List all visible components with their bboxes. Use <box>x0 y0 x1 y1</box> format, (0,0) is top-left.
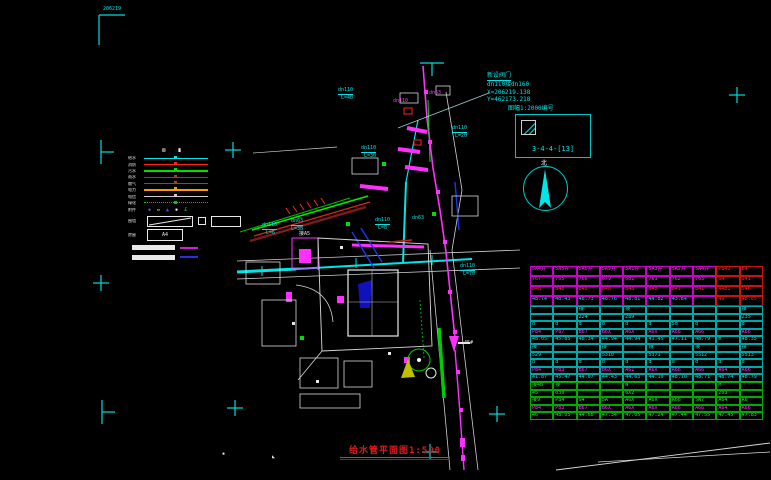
table-cell <box>577 352 600 360</box>
table-cell <box>600 314 623 322</box>
table-cell: 679 <box>600 276 623 286</box>
table-cell: P84 <box>553 397 576 405</box>
table-cell: 546 <box>740 286 763 296</box>
table-cell: d <box>623 321 646 329</box>
table-cell: 529 <box>530 352 553 360</box>
map-label: 45# <box>464 341 473 346</box>
valve-annotation-title: 新设阀门 <box>487 72 511 81</box>
table-cell: 43.84 <box>670 296 693 306</box>
table-cell: 接 <box>623 306 646 314</box>
table-cell: P84 <box>530 329 553 337</box>
table-cell: 49 <box>716 296 739 306</box>
table-cell <box>740 390 763 398</box>
table-row: dddddd5ddd <box>530 321 763 329</box>
table-cell: A6X <box>623 405 646 413</box>
table-cell: d <box>693 359 716 367</box>
table-cell: 47.44 <box>670 412 693 420</box>
legend-header: ⊠∎ <box>128 146 246 155</box>
table-cell <box>646 382 669 390</box>
table-cell: 接4B <box>530 382 553 390</box>
table-cell: P83 <box>553 367 576 375</box>
table-cell: B4 <box>740 266 763 276</box>
legend-line-tick-icon <box>174 168 177 171</box>
table-cell: 41.45 <box>646 336 669 344</box>
table-cell: 47.34 <box>600 412 623 420</box>
valve-annotation: 新设阀门 dn110接dn160 X=206219.138 Y=462173.2… <box>487 72 530 104</box>
table-cell: 44.82 <box>646 296 669 306</box>
table-cell: d <box>577 321 600 329</box>
legend-symbols-label: 附件 <box>128 208 142 212</box>
table-cell: d <box>623 359 646 367</box>
map-label: ▪ <box>222 452 225 457</box>
table-row: 41.8745.4744.0744.4344.6344.1048.1048.71… <box>530 374 763 382</box>
table-cell: 48.34 <box>577 336 600 344</box>
map-label: 接A5 <box>299 232 310 237</box>
legend-row-label: 给水 <box>128 156 142 160</box>
legend: ⊠∎ 给水消防污水雨水燃气电力电信绿化 附件◆▭▲▪£ 围墙 房屋 A4 <box>128 146 246 260</box>
legend-row-label: 电信 <box>128 195 142 199</box>
table-cell: M <box>716 382 739 390</box>
table-row: 48.7448.4348.7348.7648.8144.8243.844948.… <box>530 296 763 306</box>
scale-bar-icon <box>132 245 175 250</box>
table-cell: 5A4井 <box>693 266 716 276</box>
table-row: 76776576667968176176276364241 <box>530 276 763 286</box>
table-cell <box>693 306 716 314</box>
table-cell <box>623 344 646 352</box>
table-cell: P87 <box>553 329 576 337</box>
wall-symbol-icon <box>147 216 193 227</box>
legend-line-tick-icon <box>174 187 177 190</box>
table-cell: 6X2 <box>623 390 646 398</box>
legend-row: 绿化 <box>128 200 246 206</box>
table-cell: B67 <box>577 405 600 413</box>
table-cell: 030 <box>553 390 576 398</box>
table-row: 450306X2203 <box>530 390 763 398</box>
table-cell: B6X <box>600 367 623 375</box>
table-cell: 5371 <box>646 352 669 360</box>
sheet-title: 给水管平面图1:500 <box>340 443 450 460</box>
table-cell: 763 <box>693 276 716 286</box>
map-label: dn110 <box>262 223 277 230</box>
map-label: dn110 <box>452 126 467 133</box>
table-cell: 48.74 <box>530 296 553 306</box>
table-cell: 224 <box>577 314 600 322</box>
table-cell: 48.05 <box>740 296 763 306</box>
legend-line-sample-icon <box>144 164 208 165</box>
table-cell: 47.55 <box>693 412 716 420</box>
table-cell: 44.94 <box>600 336 623 344</box>
table-cell: 45.85 <box>553 336 576 344</box>
legend-row-label: 燃气 <box>128 182 142 186</box>
table-cell <box>553 352 576 360</box>
table-cell: 48.35 <box>740 336 763 344</box>
table-cell: 841 <box>693 286 716 296</box>
map-label: dn110 <box>460 264 475 271</box>
table-cell <box>670 344 693 352</box>
table-cell: 5W7 <box>693 397 716 405</box>
table-row: 4648.0544.6847.3447.0547.2447.4447.5547.… <box>530 412 763 420</box>
table-cell: 48.79 <box>740 374 763 382</box>
table-cell: 5513 <box>740 352 763 360</box>
table-row: 224289235 <box>530 314 763 322</box>
table-row: dddddddddd <box>530 359 763 367</box>
table-cell: 848 <box>530 286 553 296</box>
map-label: 206219 <box>103 7 121 12</box>
building-symbol-box: A4 <box>147 229 183 241</box>
table-cell: A66 <box>693 405 716 413</box>
table-cell: 5A1井 <box>623 266 646 276</box>
table-cell: 48.71 <box>693 374 716 382</box>
legend-header-glyph-icon: ∎ <box>178 147 182 154</box>
table-cell: 5A4井 <box>530 266 553 276</box>
table-cell: 44.63 <box>623 374 646 382</box>
north-arrow-icon <box>523 166 568 211</box>
table-cell: A66 <box>670 367 693 375</box>
table-cell: 681 <box>623 276 646 286</box>
table-cell: 848 <box>577 286 600 296</box>
table-row: P84P87B67B6XA6XA6XA66A66A66 <box>530 329 763 337</box>
table-cell: d <box>740 359 763 367</box>
north-compass: 北 <box>523 166 568 211</box>
table-cell <box>716 306 739 314</box>
legend-row-label: 消防 <box>128 163 142 167</box>
legend-wall-row: 围墙 <box>128 214 246 228</box>
legend-symbol-icon: ▲ <box>166 207 169 213</box>
table-cell: 接 <box>553 382 576 390</box>
table-cell: 47.83 <box>740 412 763 420</box>
detail-reference-box: 3-4-4-[13] <box>515 114 591 158</box>
table-cell: d <box>553 359 576 367</box>
table-cell: d <box>530 359 553 367</box>
table-cell: A6X <box>646 367 669 375</box>
legend-building-label: 房屋 <box>128 233 142 237</box>
table-cell: B67 <box>577 367 600 375</box>
scale-bar-icon <box>132 255 175 260</box>
legend-line-tick-icon <box>174 162 177 165</box>
map-label: ◣ <box>272 455 275 460</box>
table-cell: A64 <box>716 397 739 405</box>
table-cell: 235 <box>740 314 763 322</box>
rect-symbol-icon <box>211 216 241 227</box>
table-cell: 5d <box>670 321 693 329</box>
table-cell: B6X <box>600 329 623 337</box>
table-cell: d <box>716 359 739 367</box>
table-cell: 5A2井 <box>670 266 693 276</box>
table-cell: A66 <box>670 329 693 337</box>
table-cell <box>693 314 716 322</box>
table-cell <box>600 306 623 314</box>
table-cell: 5A <box>600 397 623 405</box>
legend-header-glyph-icon: ⊠ <box>162 147 166 154</box>
table-cell <box>716 321 739 329</box>
legend-line-sample-icon <box>144 177 208 178</box>
table-cell: 41.87 <box>530 374 553 382</box>
table-cell <box>670 382 693 390</box>
legend-line-sample-icon <box>144 202 208 203</box>
map-label: dn110 <box>338 88 353 95</box>
map-label: dn63 <box>412 216 424 221</box>
title-underline <box>340 459 450 460</box>
table-row: 接接接接接 <box>530 344 763 352</box>
map-label: dn110 <box>393 99 408 104</box>
table-cell: A66 <box>670 397 693 405</box>
table-row: 接接接 <box>530 306 763 314</box>
table-cell: P842 <box>716 266 739 276</box>
table-cell <box>670 390 693 398</box>
table-cell: A4B1 <box>716 286 739 296</box>
table-cell: d <box>530 321 553 329</box>
table-row: 848848848848848848841841A4B1546 <box>530 286 763 296</box>
map-label: L=30 <box>364 154 376 159</box>
legend-line-sample-icon <box>144 170 208 171</box>
sheet-note: 图幅1:2000编号 <box>508 103 554 112</box>
table-cell: A66 <box>740 329 763 337</box>
table-cell <box>577 390 600 398</box>
table-cell: d <box>646 321 669 329</box>
table-cell <box>716 352 739 360</box>
table-cell: 44.43 <box>600 374 623 382</box>
table-cell <box>600 382 623 390</box>
magenta-line-icon <box>180 247 198 249</box>
table-cell: 45.47 <box>553 374 576 382</box>
legend-line-sample-icon <box>144 196 208 197</box>
table-cell: 47.45 <box>716 412 739 420</box>
table-cell: 48.74 <box>716 374 739 382</box>
blue-line-icon <box>180 256 198 258</box>
table-cell: 848 <box>553 286 576 296</box>
map-label: dn110 <box>361 146 376 153</box>
table-cell: A66 <box>740 367 763 375</box>
table-cell: B67 <box>577 329 600 337</box>
table-cell <box>530 306 553 314</box>
legend-line-tick-icon <box>174 201 177 204</box>
hatch-square-icon <box>521 120 536 135</box>
table-cell: 761 <box>646 276 669 286</box>
table-cell: 848 <box>646 286 669 296</box>
elevation-data-table: 5A4井5A5井5A6井5A9井5A1井5A3井5A2井5A4井P842B476… <box>530 266 763 420</box>
table-cell: A66 <box>670 405 693 413</box>
table-cell: m <box>716 336 739 344</box>
table-cell: 48.73 <box>577 296 600 306</box>
legend-row-label: 雨水 <box>128 175 142 179</box>
table-cell: 44.07 <box>577 374 600 382</box>
table-cell: 47.11 <box>670 336 693 344</box>
table-cell: W <box>623 382 646 390</box>
table-cell: 241 <box>740 276 763 286</box>
legend-row-label: 绿化 <box>128 201 142 205</box>
table-cell: A66 <box>693 329 716 337</box>
table-row: 接9P84945AA6XA6XA665W7A64A6 <box>530 397 763 405</box>
detail-reference-label: 3-4-4-[13] <box>516 145 590 153</box>
table-cell: 848 <box>623 286 646 296</box>
table-cell <box>716 314 739 322</box>
map-label: L=6 <box>266 231 275 236</box>
table-cell: d <box>600 321 623 329</box>
legend-symbol-icon: ▪ <box>175 207 178 213</box>
valve-annotation-x: X=206219.138 <box>487 89 530 96</box>
table-cell: 接 <box>530 344 553 352</box>
table-cell: 47.24 <box>646 412 669 420</box>
table-cell: 64 <box>716 276 739 286</box>
table-cell <box>716 329 739 337</box>
table-cell: 94 <box>577 397 600 405</box>
table-cell: A64 <box>716 405 739 413</box>
table-cell: A6X <box>623 329 646 337</box>
legend-wall-label: 围墙 <box>128 219 142 223</box>
map-label: L=70 <box>463 272 475 277</box>
table-cell <box>716 344 739 352</box>
legend-line-tick-icon <box>174 194 177 197</box>
table-cell <box>670 352 693 360</box>
table-cell: A61 <box>623 367 646 375</box>
table-row: P84P83B67B6XA6XA6XA66A66A64A66 <box>530 405 763 413</box>
map-label: dn63 <box>429 91 441 96</box>
table-cell: d <box>693 321 716 329</box>
legend-symbol-row: 附件◆▭▲▪£ <box>128 206 246 214</box>
table-cell: 203 <box>716 390 739 398</box>
table-cell: P84 <box>530 367 553 375</box>
cad-viewport[interactable]: dn110L=20dn110L=30dn110L=40dn63L=38dn110… <box>0 0 771 480</box>
legend-building-row: 房屋 A4 <box>128 228 246 242</box>
table-cell <box>553 306 576 314</box>
map-label: L=8 <box>378 226 387 231</box>
table-cell: 45 <box>530 390 553 398</box>
table-cell <box>530 314 553 322</box>
legend-line-tick-icon <box>174 175 177 178</box>
table-cell <box>693 382 716 390</box>
table-cell <box>646 314 669 322</box>
table-cell: 接 <box>646 344 669 352</box>
table-cell: A64 <box>716 367 739 375</box>
table-cell <box>553 314 576 322</box>
table-cell: d <box>670 359 693 367</box>
table-cell: 762 <box>670 276 693 286</box>
table-cell: 44.68 <box>577 412 600 420</box>
table-cell: A6 <box>740 397 763 405</box>
table-cell: P84 <box>530 405 553 413</box>
legend-line-sample-icon <box>144 189 208 190</box>
table-cell: 接 <box>693 344 716 352</box>
table-row: 5A4井5A5井5A6井5A9井5A1井5A3井5A2井5A4井P842B4 <box>530 266 763 276</box>
legend-line-rows: 给水消防污水雨水燃气电力电信绿化 <box>128 155 246 206</box>
map-label: dn63 <box>291 219 303 226</box>
table-cell: 48.79 <box>693 336 716 344</box>
table-cell <box>577 344 600 352</box>
legend-line-tick-icon <box>174 156 177 159</box>
valve-annotation-pipe: dn110接dn160 <box>487 81 529 88</box>
legend-line-sample-icon <box>144 183 208 184</box>
table-cell: 46 <box>530 412 553 420</box>
table-cell: 5A9井 <box>600 266 623 276</box>
legend-line-sample-icon <box>144 158 208 159</box>
table-cell: 接 <box>740 344 763 352</box>
legend-line-tick-icon <box>174 181 177 184</box>
table-cell <box>577 382 600 390</box>
table-cell: 48.76 <box>600 296 623 306</box>
table-cell: 48.05 <box>530 336 553 344</box>
table-cell: A66 <box>740 405 763 413</box>
table-cell <box>600 390 623 398</box>
legend-row-label: 电力 <box>128 188 142 192</box>
table-cell <box>553 344 576 352</box>
table-cell <box>693 390 716 398</box>
table-cell: 5512 <box>693 352 716 360</box>
table-cell: 48.10 <box>670 374 693 382</box>
table-cell: 767 <box>530 276 553 286</box>
table-cell <box>646 390 669 398</box>
table-cell: A6X <box>646 405 669 413</box>
table-cell: 766 <box>577 276 600 286</box>
table-cell: B6X <box>600 405 623 413</box>
table-cell <box>693 296 716 306</box>
table-cell: d <box>577 359 600 367</box>
table-cell <box>670 314 693 322</box>
table-cell: A6X <box>646 329 669 337</box>
square-symbol-icon <box>198 217 206 225</box>
map-label: L=40 <box>341 96 353 101</box>
map-label: dn110 <box>375 218 390 225</box>
table-cell: 5A3井 <box>646 266 669 276</box>
table-cell: d <box>553 321 576 329</box>
table-cell: 接9 <box>530 397 553 405</box>
table-cell: d <box>600 359 623 367</box>
table-cell <box>670 306 693 314</box>
table-cell <box>740 382 763 390</box>
table-cell: 接 <box>577 306 600 314</box>
table-cell: 841 <box>670 286 693 296</box>
legend-row-label: 污水 <box>128 169 142 173</box>
table-cell: 5A5井 <box>553 266 576 276</box>
table-cell: 289 <box>623 314 646 322</box>
table-cell: 接 <box>740 306 763 314</box>
table-cell: d <box>740 321 763 329</box>
table-cell: A6X <box>623 397 646 405</box>
table-cell: 765 <box>553 276 576 286</box>
table-cell <box>623 352 646 360</box>
table-cell: 44.10 <box>646 374 669 382</box>
sheet-title-text: 给水管平面图1:500 <box>340 443 450 456</box>
legend-symbol-icon: ◆ <box>148 207 151 213</box>
table-cell: 48.81 <box>623 296 646 306</box>
table-cell: 47.05 <box>623 412 646 420</box>
legend-symbol-icon: £ <box>184 207 187 213</box>
table-cell: A6X <box>646 397 669 405</box>
legend-scale-bars <box>128 245 246 260</box>
map-label: L=20 <box>455 134 467 139</box>
table-cell <box>646 306 669 314</box>
table-cell: P83 <box>553 405 576 413</box>
table-cell: 48.05 <box>553 412 576 420</box>
table-row: 5295310537155125513 <box>530 352 763 360</box>
table-cell: 44.94 <box>623 336 646 344</box>
table-cell: 848 <box>600 286 623 296</box>
table-cell: d <box>646 359 669 367</box>
table-cell: A66 <box>693 367 716 375</box>
table-cell: 接 <box>600 344 623 352</box>
table-row: P84P83B67B6XA61A6XA66A66A64A66 <box>530 367 763 375</box>
title-underline <box>340 457 450 458</box>
table-row: 48.0545.8548.3444.9444.9441.4547.1148.79… <box>530 336 763 344</box>
legend-symbol-icon: ▭ <box>157 207 160 213</box>
table-cell: 5310 <box>600 352 623 360</box>
table-cell: 48.43 <box>553 296 576 306</box>
table-row: 接4B接WM <box>530 382 763 390</box>
table-cell: 5A6井 <box>577 266 600 276</box>
